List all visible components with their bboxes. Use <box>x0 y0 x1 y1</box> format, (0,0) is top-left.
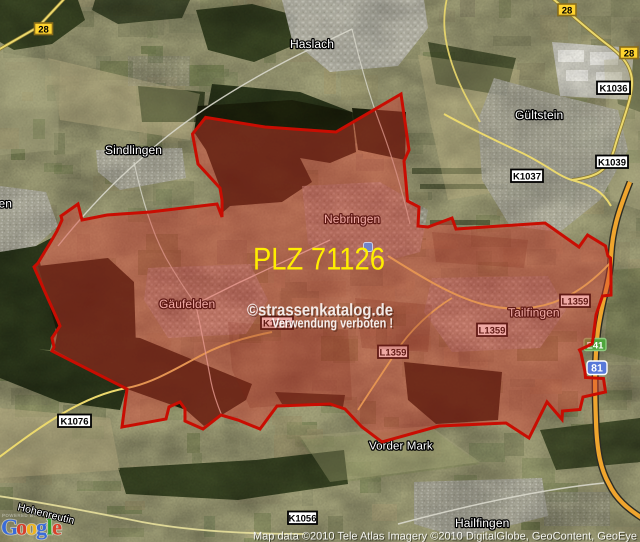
svg-text:Hailfingen: Hailfingen <box>455 516 509 530</box>
svg-text:K1036: K1036 <box>600 84 628 95</box>
svg-text:en: en <box>0 197 12 211</box>
svg-text:Vorder Mark: Vorder Mark <box>369 441 433 453</box>
svg-text:Gültstein: Gültstein <box>515 108 563 122</box>
svg-text:K1076: K1076 <box>61 417 89 428</box>
svg-text:28: 28 <box>562 5 573 16</box>
svg-text:28: 28 <box>38 24 49 35</box>
svg-text:K1056: K1056 <box>289 514 317 525</box>
svg-text:K1037: K1037 <box>513 172 541 183</box>
svg-text:Haslach: Haslach <box>290 37 334 51</box>
svg-text:Verwendung verboten !: Verwendung verboten ! <box>272 316 393 331</box>
svg-text:81: 81 <box>591 363 603 375</box>
svg-text:PLZ 71126: PLZ 71126 <box>253 241 385 277</box>
svg-text:28: 28 <box>624 48 635 59</box>
svg-text:e: e <box>52 515 62 540</box>
svg-text:Map data ©2010 Tele Atlas Ima: Map data ©2010 Tele Atlas Imagery ©2010 … <box>253 531 637 542</box>
svg-text:Sindlingen: Sindlingen <box>105 143 162 157</box>
svg-text:K1039: K1039 <box>598 158 626 169</box>
